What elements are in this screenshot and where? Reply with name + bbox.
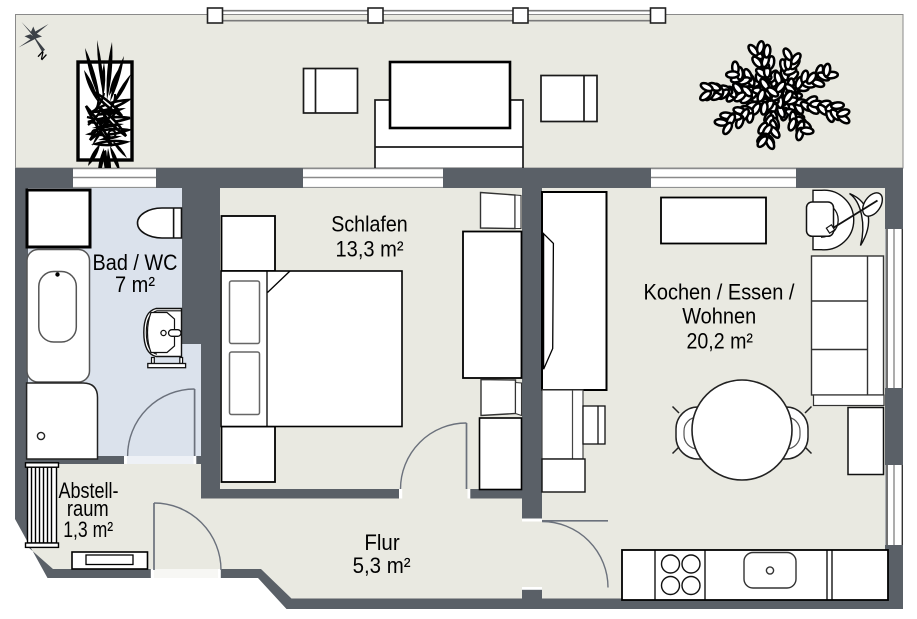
svg-text:13,3 m²: 13,3 m² bbox=[336, 238, 404, 262]
svg-text:Bad / WC: Bad / WC bbox=[93, 251, 178, 275]
svg-text:5,3 m²: 5,3 m² bbox=[353, 553, 411, 578]
svg-text:Wohnen: Wohnen bbox=[682, 305, 756, 329]
svg-text:Flur: Flur bbox=[364, 530, 399, 555]
svg-text:7 m²: 7 m² bbox=[115, 273, 155, 297]
svg-text:1,3 m²: 1,3 m² bbox=[63, 518, 113, 542]
svg-text:Schlafen: Schlafen bbox=[331, 213, 408, 237]
svg-text:20,2 m²: 20,2 m² bbox=[686, 329, 753, 353]
svg-text:Kochen / Essen /: Kochen / Essen / bbox=[644, 281, 795, 305]
